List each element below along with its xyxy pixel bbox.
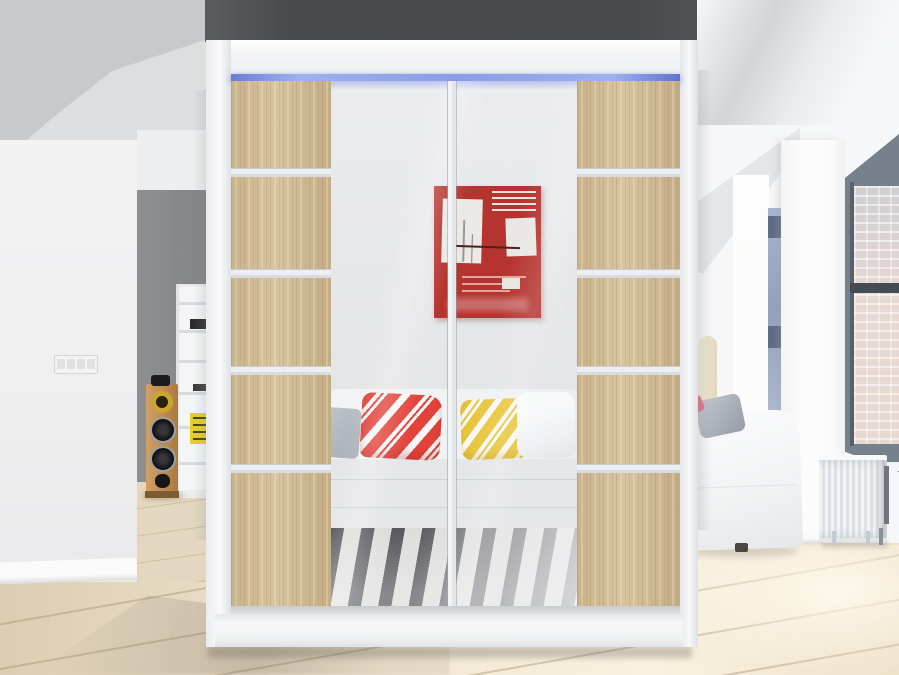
radiator-valve <box>884 466 889 524</box>
wardrobe-plinth <box>215 614 683 647</box>
wood-divider-strip <box>577 269 680 278</box>
radiator <box>819 455 887 542</box>
switch-rocker <box>67 359 75 369</box>
window-inner-frame <box>850 182 854 446</box>
window-transom-bar <box>850 283 899 293</box>
wood-divider-strip <box>577 168 680 177</box>
wood-divider-strip <box>577 366 680 375</box>
sofa-foot <box>735 543 748 552</box>
switch-rocker <box>77 359 85 369</box>
wood-divider-strip <box>231 269 331 278</box>
wardrobe-left-column <box>206 40 231 647</box>
speaker-top-cap <box>151 375 170 386</box>
radiator-leg <box>866 531 870 545</box>
wood-divider-strip <box>231 168 331 177</box>
window-right <box>845 134 899 472</box>
dark-wall-band <box>205 0 697 42</box>
wood-divider-strip <box>577 464 680 473</box>
wardrobe-floor-shadow <box>208 646 692 658</box>
sliding-door-right-wood-panel <box>577 81 680 606</box>
window-mullion-detail <box>768 326 781 348</box>
wood-divider-strip <box>231 366 331 375</box>
window-mullion-detail <box>768 216 781 238</box>
wardrobe-right-column <box>680 40 698 647</box>
wardrobe-led-strip <box>231 74 680 81</box>
radiator-leg <box>832 531 836 545</box>
wardrobe-shadow-right <box>697 70 712 530</box>
speaker-tweeter <box>151 391 173 413</box>
radiator-pipe <box>879 528 883 545</box>
room-photo <box>0 0 899 675</box>
speaker-woofer <box>150 417 176 443</box>
speaker-port <box>155 474 170 488</box>
sliding-door-seam <box>447 81 457 606</box>
speaker-plinth <box>145 491 179 498</box>
sliding-door-left-wood-panel <box>231 81 331 606</box>
window-glass-brick-view <box>854 186 899 444</box>
switch-rocker <box>87 359 95 369</box>
wood-divider-strip <box>231 464 331 473</box>
switch-rocker <box>57 359 65 369</box>
ceiling-right <box>695 0 899 125</box>
wardrobe-shadow-left <box>193 90 206 540</box>
speaker-woofer <box>150 446 176 472</box>
light-switch <box>54 355 98 374</box>
